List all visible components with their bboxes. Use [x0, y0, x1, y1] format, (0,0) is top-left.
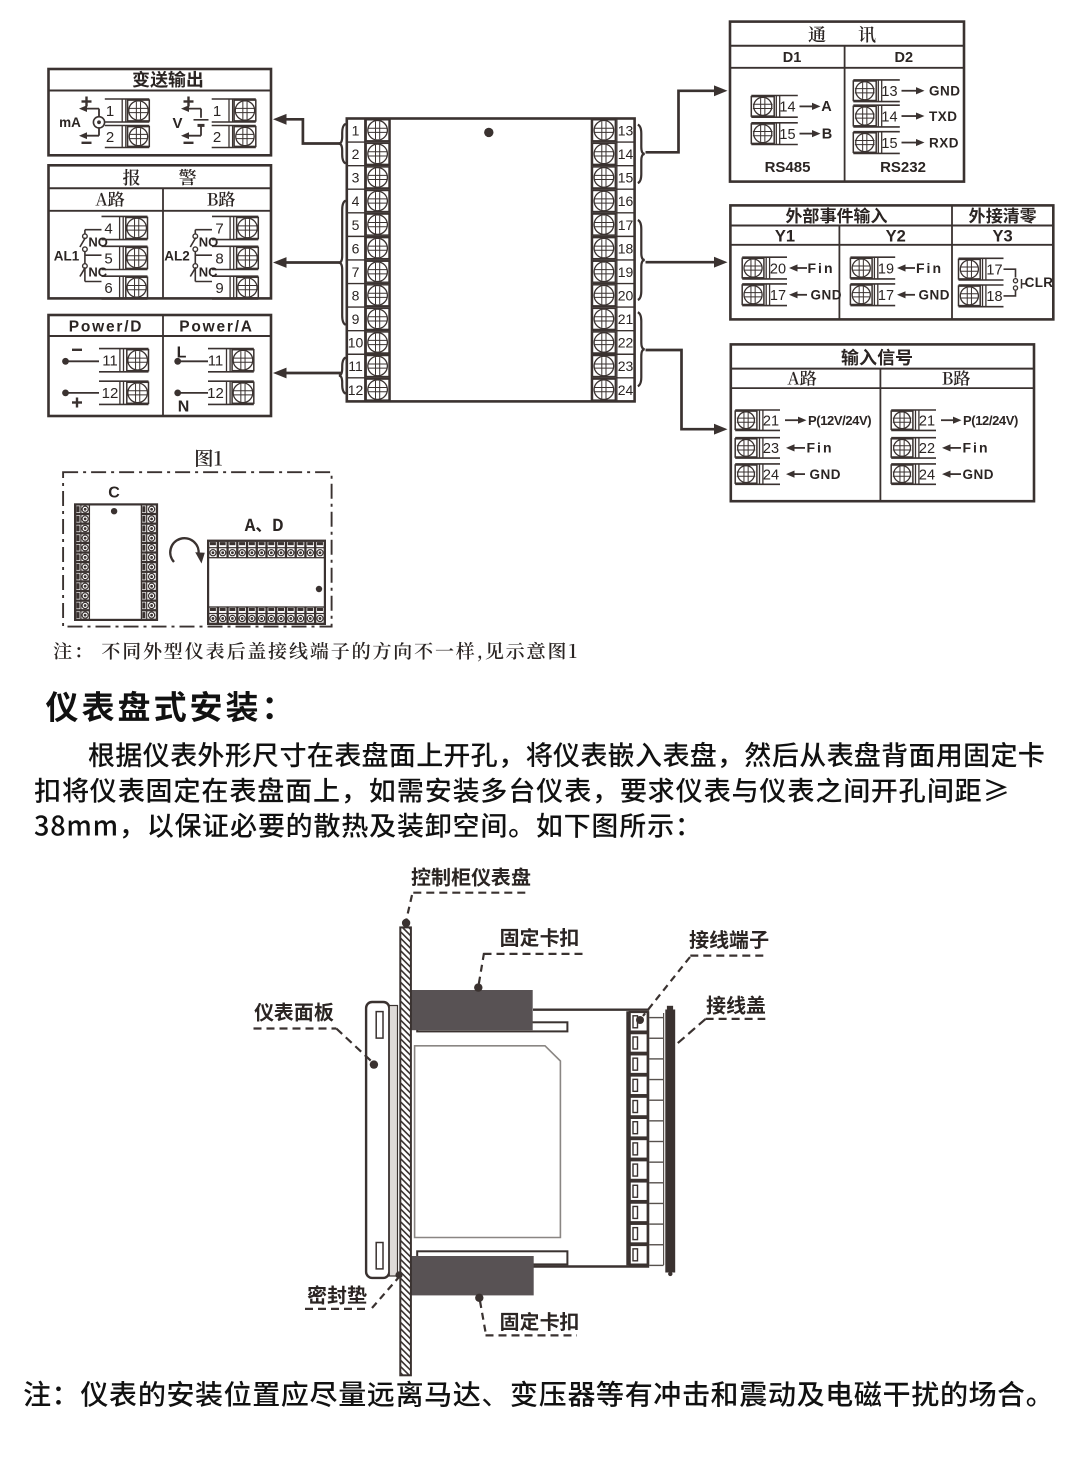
svg-text:N: N: [178, 399, 190, 416]
svg-text:Y1: Y1: [775, 227, 795, 245]
svg-text:17: 17: [770, 288, 786, 304]
svg-text:21: 21: [763, 413, 779, 429]
svg-text:22: 22: [919, 441, 935, 457]
svg-text:Power/A: Power/A: [179, 318, 254, 335]
svg-text:RS232: RS232: [880, 159, 926, 176]
svg-text:固定卡扣: 固定卡扣: [500, 922, 580, 951]
svg-text:mA: mA: [59, 115, 81, 130]
svg-text:13: 13: [618, 122, 634, 138]
svg-text:3: 3: [352, 170, 360, 186]
svg-text:20: 20: [618, 288, 634, 304]
svg-text:7: 7: [215, 220, 223, 237]
svg-text:19: 19: [618, 264, 634, 280]
svg-text:A路: A路: [787, 365, 817, 390]
svg-text:2: 2: [106, 129, 114, 146]
svg-text:18: 18: [986, 289, 1002, 305]
svg-text:11: 11: [102, 353, 118, 370]
svg-text:1: 1: [106, 103, 114, 120]
svg-text:14: 14: [618, 146, 634, 162]
svg-text:10: 10: [348, 335, 364, 351]
svg-text:23: 23: [618, 358, 634, 374]
svg-text:Fin: Fin: [807, 440, 834, 456]
svg-text:AL2: AL2: [164, 249, 190, 264]
svg-text:Power/D: Power/D: [69, 318, 144, 335]
svg-text:变送输出: 变送输出: [132, 66, 204, 92]
svg-text:接线端子: 接线端子: [689, 924, 769, 953]
svg-text:GND: GND: [919, 288, 951, 303]
svg-text:Y3: Y3: [993, 227, 1013, 245]
svg-text:16: 16: [618, 193, 634, 209]
svg-text:6: 6: [352, 240, 360, 256]
svg-text:14: 14: [881, 109, 897, 125]
svg-text:11: 11: [208, 353, 224, 370]
svg-text:接线盖: 接线盖: [706, 990, 766, 1019]
svg-text:GND: GND: [811, 288, 843, 303]
svg-text:5: 5: [352, 217, 360, 233]
svg-text:A路: A路: [95, 185, 125, 210]
svg-text:仪表面板: 仪表面板: [254, 997, 334, 1026]
svg-text:17: 17: [618, 217, 634, 233]
svg-text:固定卡扣: 固定卡扣: [500, 1306, 580, 1335]
svg-text:38mm，以保证必要的散热及装卸空间。如下图所示：: 38mm，以保证必要的散热及装卸空间。如下图所示：: [34, 805, 703, 844]
svg-text:仪表盘式安装：: 仪表盘式安装：: [46, 681, 298, 729]
svg-text:18: 18: [618, 240, 634, 256]
svg-text:9: 9: [352, 311, 360, 327]
svg-text:Fin: Fin: [808, 260, 835, 276]
svg-text:1: 1: [352, 122, 360, 138]
svg-text:15: 15: [618, 170, 634, 186]
svg-text:8: 8: [352, 288, 360, 304]
svg-text:17: 17: [986, 262, 1002, 278]
svg-text:Fin: Fin: [916, 260, 943, 276]
svg-text:GND: GND: [810, 467, 842, 482]
svg-text:讯: 讯: [858, 21, 876, 47]
svg-text:通: 通: [808, 21, 826, 47]
svg-text:19: 19: [878, 261, 894, 277]
svg-text:根据仪表外形尺寸在表盘面上开孔，将仪表嵌入表盘，然后从表盘背: 根据仪表外形尺寸在表盘面上开孔，将仪表嵌入表盘，然后从表盘背面用固定卡: [88, 734, 1045, 773]
svg-text:23: 23: [763, 441, 779, 457]
svg-text:GND: GND: [963, 467, 995, 482]
svg-text:24: 24: [919, 467, 935, 483]
svg-text:D2: D2: [895, 50, 914, 66]
svg-text:Fin: Fin: [963, 440, 990, 456]
svg-text:TXD: TXD: [929, 109, 958, 124]
svg-text:4: 4: [104, 220, 112, 237]
svg-text:扣将仪表固定在表盘面上，如需安装多台仪表，要求仪表与仪表之间: 扣将仪表固定在表盘面上，如需安装多台仪表，要求仪表与仪表之间开孔间距≥: [34, 769, 1011, 808]
svg-text:警: 警: [179, 164, 197, 190]
svg-text:RXD: RXD: [929, 135, 959, 150]
svg-text:P(12V/24V): P(12V/24V): [808, 413, 871, 428]
svg-text:CLR: CLR: [1025, 275, 1054, 290]
svg-text:输入信号: 输入信号: [841, 344, 913, 370]
svg-text:2: 2: [213, 129, 221, 146]
svg-text:24: 24: [763, 467, 779, 483]
svg-text:A、D: A、D: [244, 512, 284, 536]
svg-text:B路: B路: [207, 185, 236, 210]
svg-text:1: 1: [213, 103, 221, 120]
svg-text:13: 13: [881, 84, 897, 100]
svg-text:14: 14: [779, 100, 795, 116]
svg-text:15: 15: [779, 127, 795, 143]
svg-text:2: 2: [352, 146, 360, 162]
svg-text:Y2: Y2: [886, 227, 906, 245]
svg-text:B路: B路: [942, 365, 971, 390]
svg-text:15: 15: [881, 136, 897, 152]
svg-text:9: 9: [215, 280, 223, 297]
svg-text:报: 报: [123, 164, 141, 190]
svg-text:D1: D1: [783, 50, 802, 66]
svg-text:AL1: AL1: [54, 249, 80, 264]
svg-text:GND: GND: [929, 84, 961, 99]
svg-text:12: 12: [207, 385, 224, 402]
svg-text:控制柜仪表盘: 控制柜仪表盘: [411, 862, 531, 891]
svg-text:20: 20: [770, 261, 786, 277]
svg-text:V: V: [172, 115, 182, 132]
svg-text:22: 22: [618, 335, 634, 351]
svg-text:图1: 图1: [194, 444, 223, 472]
svg-text:外部事件输入: 外部事件输入: [786, 202, 888, 227]
svg-text:12: 12: [102, 385, 119, 402]
svg-text:B: B: [822, 126, 832, 142]
svg-text:17: 17: [878, 288, 894, 304]
svg-text:5: 5: [104, 250, 112, 267]
svg-text:7: 7: [352, 264, 360, 280]
svg-text:11: 11: [348, 358, 363, 374]
svg-text:C: C: [108, 485, 120, 502]
svg-text:4: 4: [352, 193, 360, 209]
svg-text:A: A: [821, 99, 832, 115]
svg-text:注：仪表的安装位置应尽量远离马达、变压器等有冲击和震动及电磁: 注：仪表的安装位置应尽量远离马达、变压器等有冲击和震动及电磁干扰的场合。: [23, 1374, 1054, 1414]
svg-text:21: 21: [919, 413, 935, 429]
svg-text:12: 12: [348, 382, 364, 398]
svg-text:RS485: RS485: [765, 159, 811, 176]
svg-text:24: 24: [618, 382, 634, 398]
svg-text:注： 不同外型仪表后盖接线端子的方向不一样,见示意图1: 注： 不同外型仪表后盖接线端子的方向不一样,见示意图1: [53, 637, 579, 664]
svg-text:8: 8: [215, 250, 223, 267]
svg-text:6: 6: [104, 280, 112, 297]
svg-text:21: 21: [618, 311, 634, 327]
svg-text:外接清零: 外接清零: [969, 202, 1037, 227]
svg-text:密封垫: 密封垫: [307, 1280, 367, 1309]
svg-text:P(12/24V): P(12/24V): [963, 413, 1018, 428]
